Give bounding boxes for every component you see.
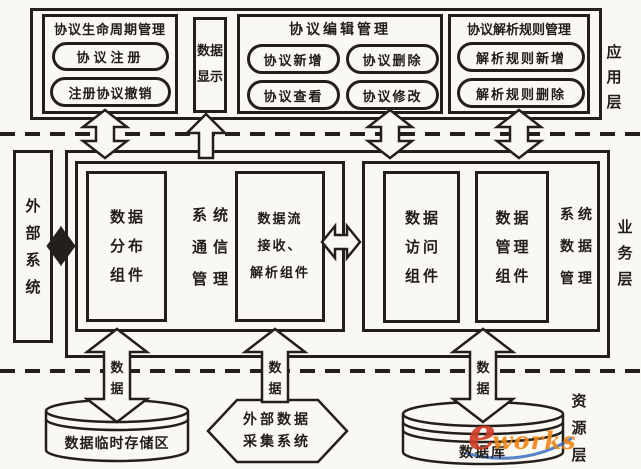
architecture-diagram: 协议生命周期管理 协议注册 注册协议撤销 数据 显示 协议编辑管理 协议新增 协… bbox=[0, 0, 641, 469]
groups-exchange-arrow bbox=[322, 226, 360, 258]
external-business-arrow bbox=[47, 227, 75, 265]
external-collector-label: 外部数据 采集系统 bbox=[227, 409, 327, 453]
eworks-works: works bbox=[492, 426, 576, 455]
eworks-watermark: eworks bbox=[468, 420, 576, 455]
data-arrow-label-left: 数 据 bbox=[104, 358, 130, 400]
temp-storage-label: 数据临时存储区 bbox=[47, 433, 187, 453]
data-arrow-label-middle: 数 据 bbox=[262, 358, 288, 400]
display-up-arrow bbox=[187, 114, 225, 158]
data-arrow-label-right: 数 据 bbox=[470, 358, 496, 400]
connector-graphics bbox=[0, 0, 641, 469]
